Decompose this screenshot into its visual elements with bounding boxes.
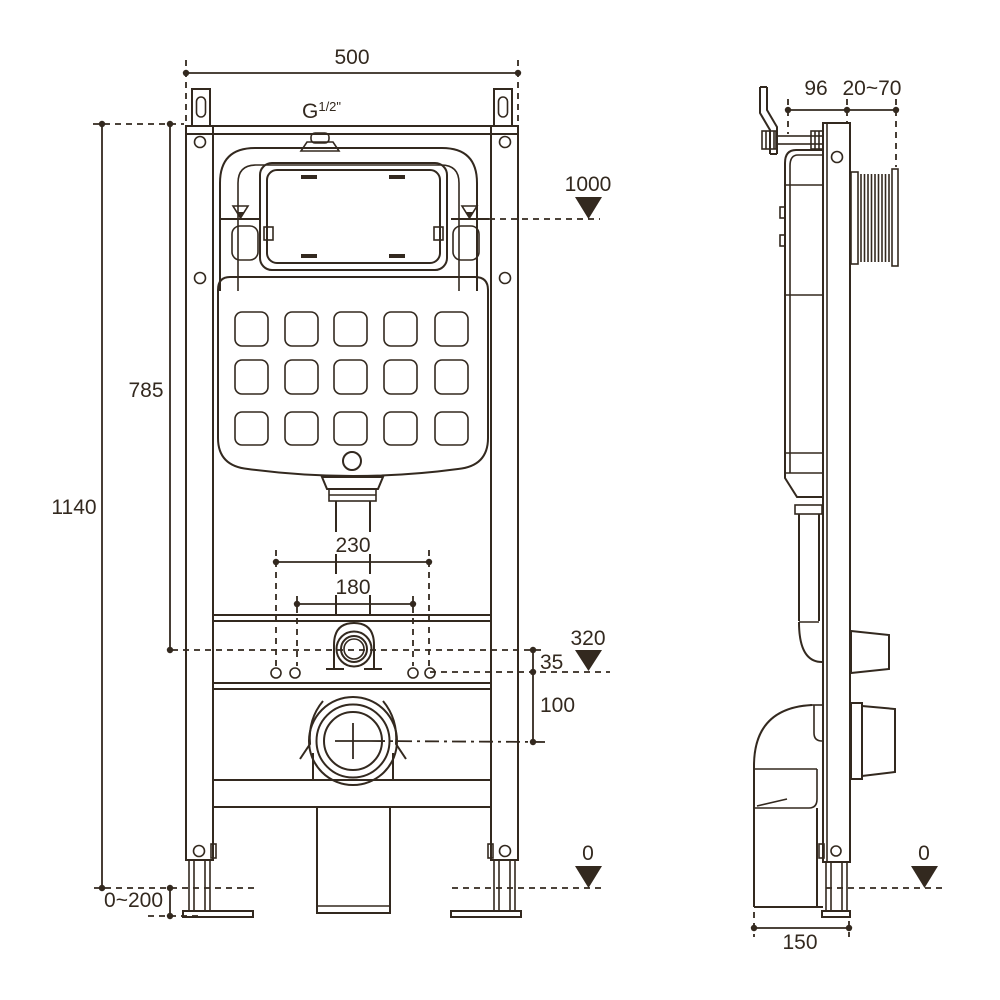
dim-frame-width: 500 xyxy=(183,46,521,122)
tank-drain-hole xyxy=(343,452,361,470)
threaded-rod xyxy=(777,136,823,144)
fixing-bolt-hole xyxy=(290,668,300,678)
mounting-tab-right xyxy=(494,89,512,126)
dim-heights: 1140 785 xyxy=(51,121,184,888)
installation-drawing: 500 G1/2" xyxy=(0,0,1000,1000)
access-panel xyxy=(267,170,440,263)
inlet-stub xyxy=(851,631,889,673)
elevation-marker-icon xyxy=(911,866,938,888)
elevation-marker-icon xyxy=(575,197,602,219)
mounting-tab-left xyxy=(192,89,210,126)
panel-clip-right xyxy=(434,227,443,240)
frame-structure xyxy=(186,89,518,860)
frame-rail-profile xyxy=(819,123,850,862)
screw-hole xyxy=(195,137,206,148)
mounting-slot-left xyxy=(197,97,206,117)
panel-clip-left xyxy=(264,227,273,240)
seam-mark xyxy=(757,799,787,806)
fixing-bolt-hole xyxy=(271,668,281,678)
dim-label-96: 96 xyxy=(804,77,827,100)
dim-label-1000: 1000 xyxy=(565,173,612,196)
foot-pin-hole xyxy=(194,846,205,857)
dim-label-320: 320 xyxy=(570,627,605,650)
fixing-bolt-hole xyxy=(408,668,418,678)
panel-mark xyxy=(389,175,405,179)
panel-mark xyxy=(301,175,317,179)
cistern-tank xyxy=(218,277,488,615)
access-opening-frame xyxy=(260,163,447,270)
front-view: 500 G1/2" xyxy=(51,46,611,919)
access-sleeve xyxy=(851,169,898,266)
foot-pin-hole xyxy=(831,846,841,856)
screw-hole xyxy=(500,137,511,148)
tank-lug xyxy=(780,207,785,218)
screw-hole xyxy=(500,273,511,284)
elevation-marker-icon xyxy=(575,650,602,671)
tank-profile xyxy=(780,150,823,497)
foot-plate xyxy=(822,911,850,917)
side-pocket-left xyxy=(232,226,258,260)
drain-stub xyxy=(862,706,895,776)
side-pocket-right xyxy=(453,226,479,260)
dim-label-180: 180 xyxy=(335,576,370,599)
flush-pipe-flange xyxy=(322,477,383,489)
clamp-wing-left xyxy=(300,701,323,759)
screw-hole xyxy=(195,273,206,284)
flush-pipe-profile xyxy=(795,505,822,662)
frame-rail-left xyxy=(186,126,213,860)
tank-emboss-grid xyxy=(235,312,468,445)
clamp-wing-right xyxy=(383,701,406,759)
dim-label-150: 150 xyxy=(782,931,817,954)
panel-mark xyxy=(301,254,317,258)
drain-socket xyxy=(300,697,545,785)
rod-nut xyxy=(811,131,823,149)
dim-label-500: 500 xyxy=(334,46,369,69)
foot-lock-tab xyxy=(819,844,824,858)
drain-stub-flange xyxy=(851,703,862,779)
water-level: 1000 xyxy=(221,173,611,219)
flush-pipe-collar xyxy=(795,505,822,514)
inlet-clamp-section: 320 35 100 xyxy=(167,615,610,745)
drain-outlet-box xyxy=(317,807,390,913)
front-bottom: 0~200 0 xyxy=(94,780,606,919)
dim-label-20-70: 20~70 xyxy=(843,77,902,100)
dim-drain-offset: 150 xyxy=(751,912,852,954)
frame-rail-right xyxy=(491,126,518,860)
dim-label-35: 35 xyxy=(540,651,563,674)
tank-lug xyxy=(780,235,785,246)
side-view: 96 20~70 xyxy=(751,77,944,954)
dim-label-100: 100 xyxy=(540,694,575,717)
frame-top-bar xyxy=(186,126,518,134)
elevation-marker-icon xyxy=(575,866,602,888)
dim-label-0-200: 0~200 xyxy=(104,889,163,912)
foot-pin-hole xyxy=(500,846,511,857)
dim-label-side-0: 0 xyxy=(918,842,930,865)
technical-drawing-page: 500 G1/2" xyxy=(0,0,1000,1000)
foot-plate xyxy=(451,911,521,917)
dim-label-230: 230 xyxy=(335,534,370,557)
mounting-slot-right xyxy=(499,97,508,117)
wall-connections xyxy=(851,631,895,779)
flush-elbow xyxy=(799,622,822,662)
fixing-bolt-hole xyxy=(425,668,435,678)
cross-bar xyxy=(213,683,491,689)
cross-bar xyxy=(213,615,491,621)
panel-mark xyxy=(389,254,405,258)
screw-hole xyxy=(832,152,843,163)
dim-label-785: 785 xyxy=(128,379,163,402)
thread-size-label: G1/2" xyxy=(302,99,341,123)
dim-bolt-spans: 230 180 xyxy=(271,532,435,678)
dim-label-1140: 1140 xyxy=(51,496,96,519)
dim-label-floor-0: 0 xyxy=(582,842,594,865)
drain-elbow xyxy=(754,705,823,907)
